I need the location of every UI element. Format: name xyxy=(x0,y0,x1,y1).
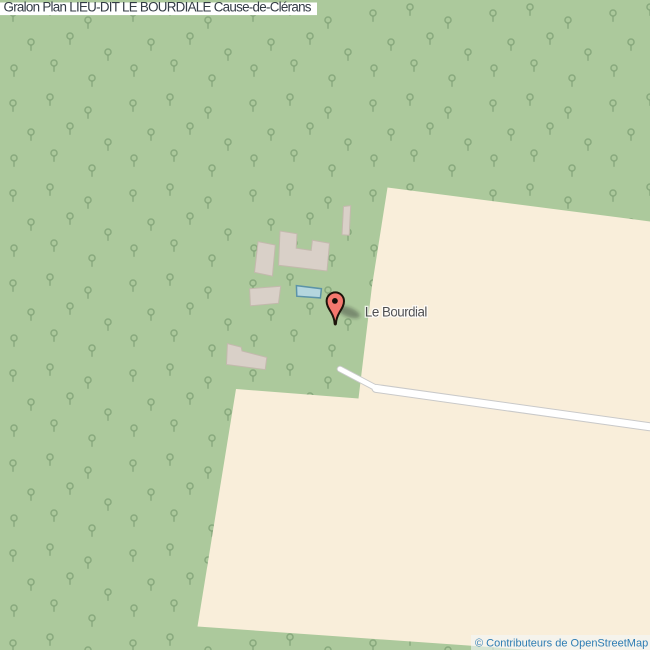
svg-text:© Contributeurs de OpenStreetM: © Contributeurs de OpenStreetMap xyxy=(475,637,648,649)
svg-text:Le Bourdial: Le Bourdial xyxy=(365,304,428,319)
svg-text:Gralon Plan LIEU-DIT LE BOURD: Gralon Plan LIEU-DIT LE BOURDIALE Cause-… xyxy=(4,0,312,15)
